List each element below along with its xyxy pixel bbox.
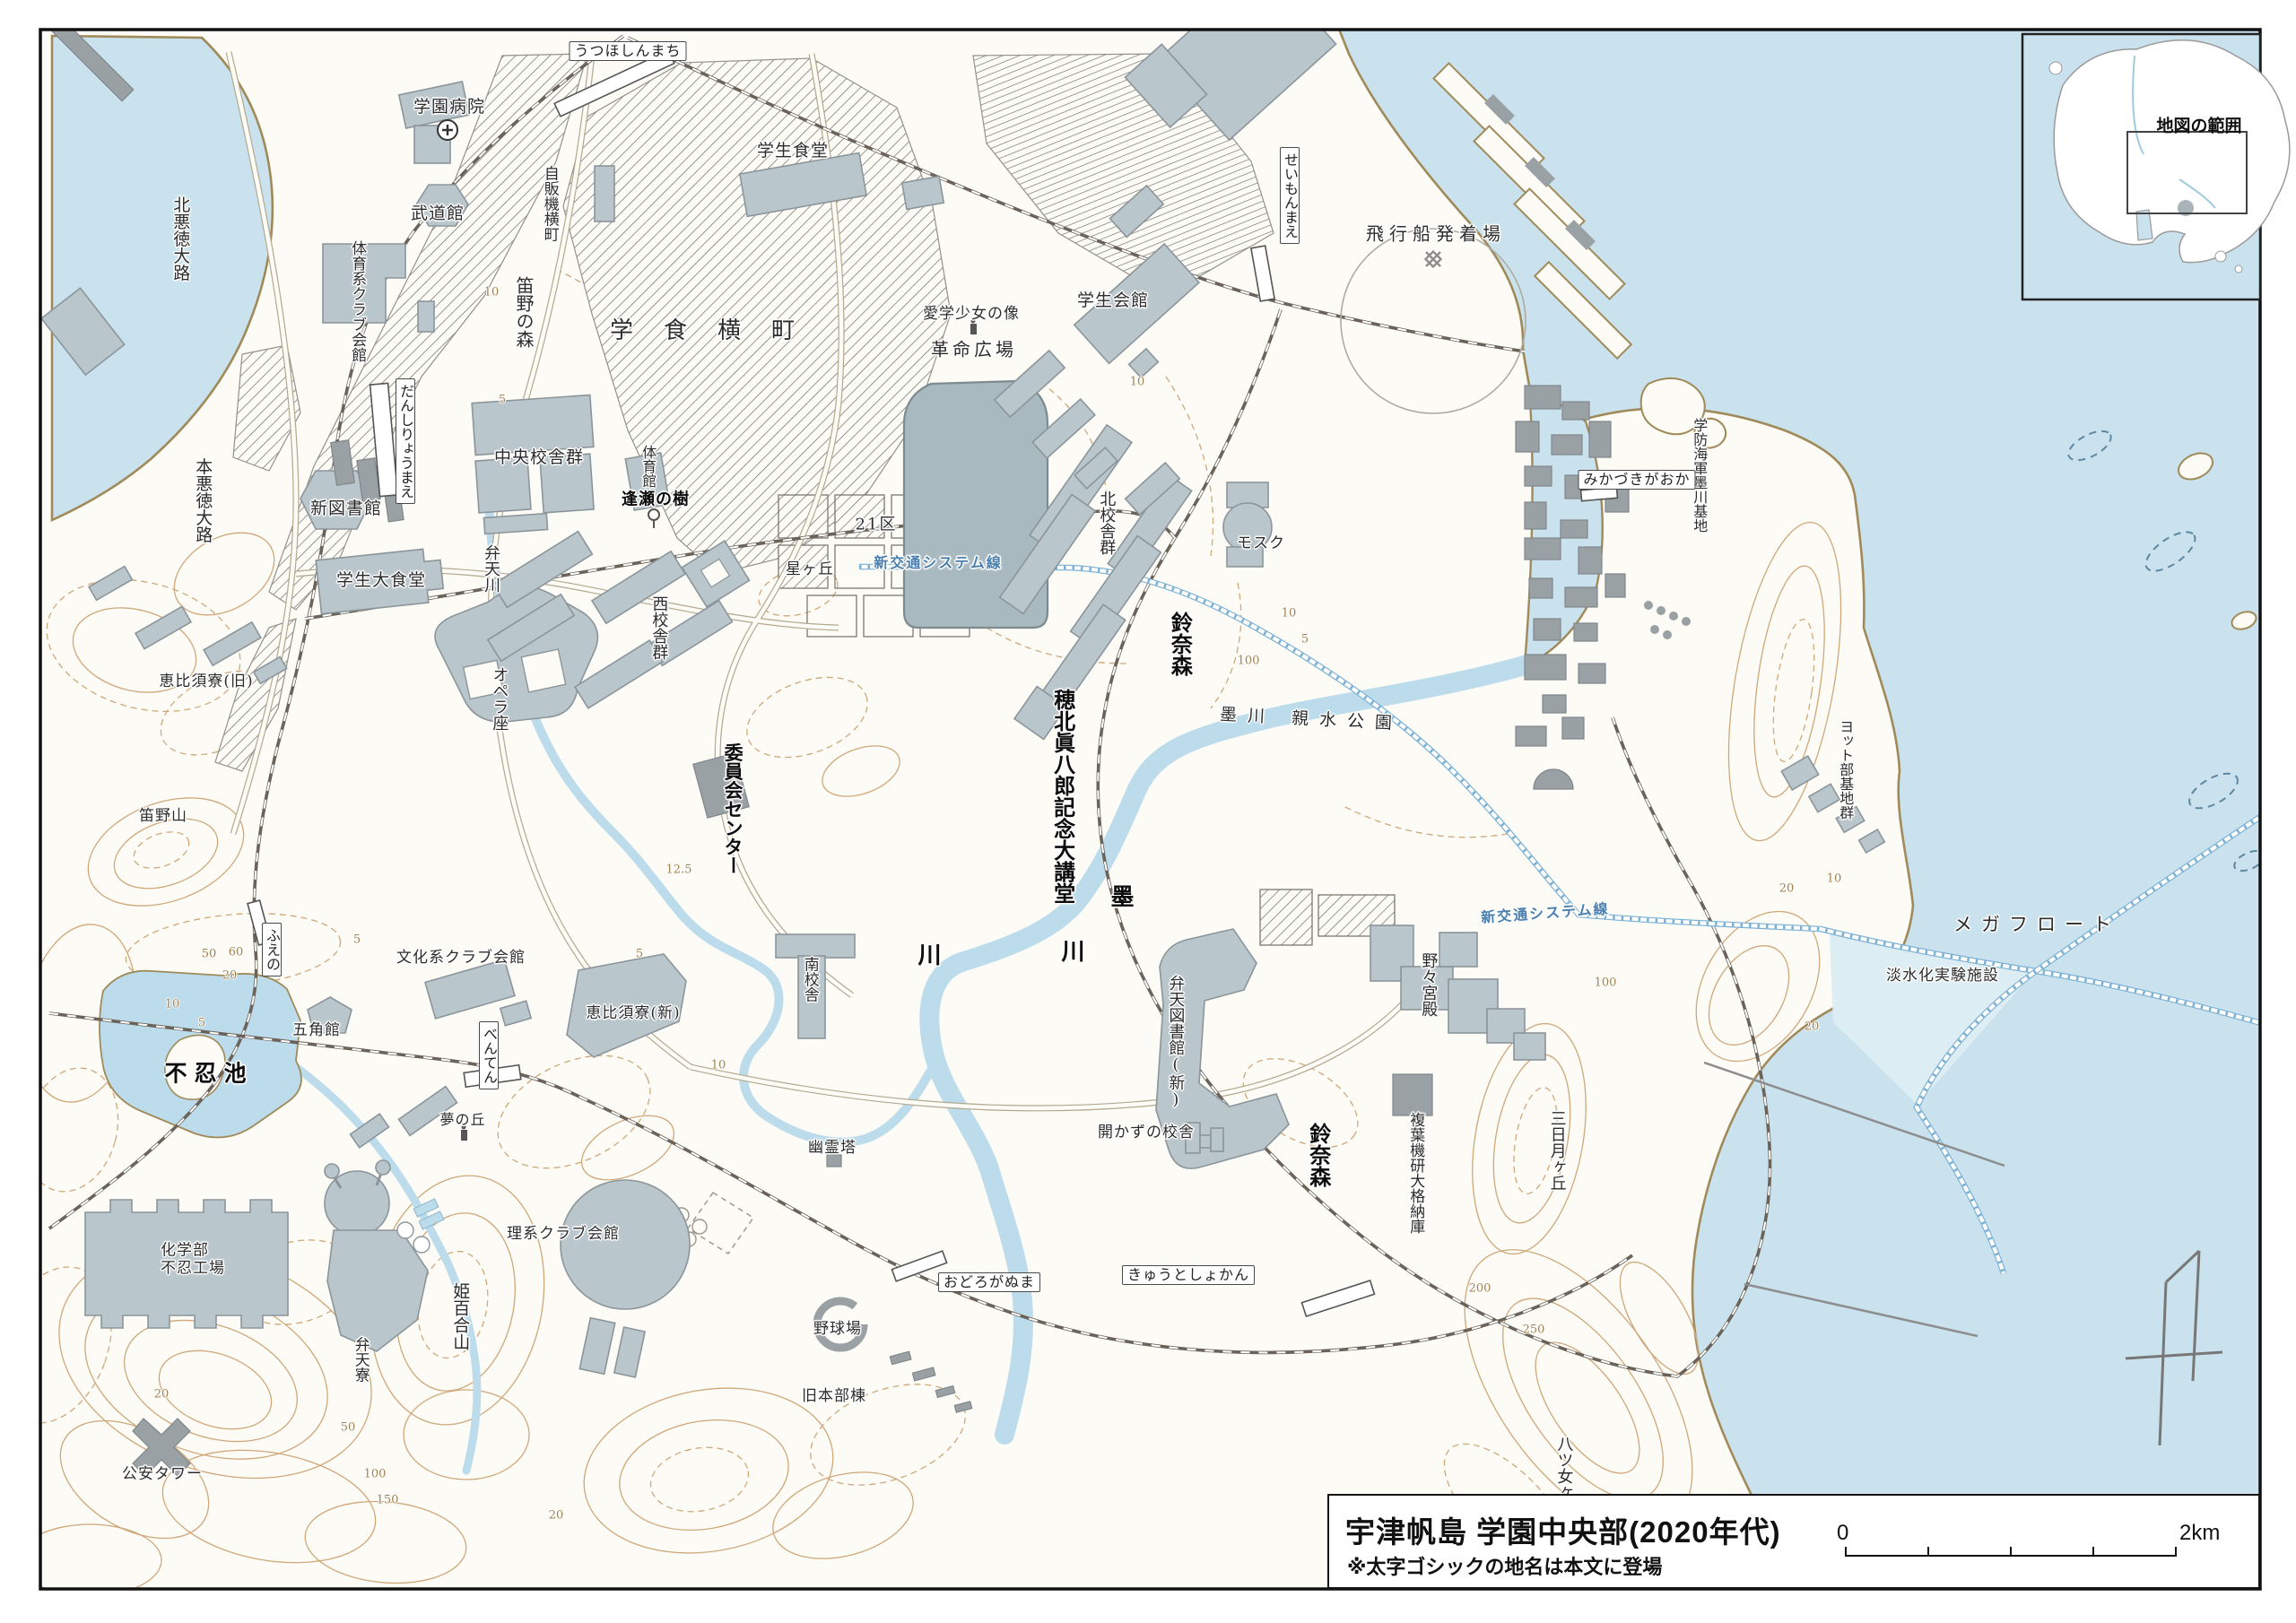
map-canvas <box>0 0 2296 1623</box>
title-block: 宇津帆島 学園中央部(2020年代) ※太字ゴシックの地名は本文に登場 0 2k… <box>1327 1494 2260 1589</box>
scale-bar: 0 2km <box>1831 1496 2253 1587</box>
chemistry-factory-building <box>85 1200 288 1328</box>
scale-start-label: 0 <box>1837 1521 1848 1546</box>
scale-end-label: 2km <box>2179 1521 2220 1546</box>
ghost-tower-building <box>827 1155 841 1167</box>
map-note: ※太字ゴシックの地名は本文に登場 <box>1347 1551 1662 1580</box>
hangar-building <box>1393 1074 1432 1115</box>
inset-map <box>2022 34 2290 299</box>
hospital-icon <box>438 120 457 140</box>
topographic-map: 学園病院学生食堂武道館体育系クラブ会館笛野の森自販機横町学食横町愛学少女の像革命… <box>0 0 2296 1623</box>
map-title: 宇津帆島 学園中央部(2020年代) <box>1345 1508 1781 1551</box>
inset-title: 地図の範囲 <box>2156 113 2241 137</box>
